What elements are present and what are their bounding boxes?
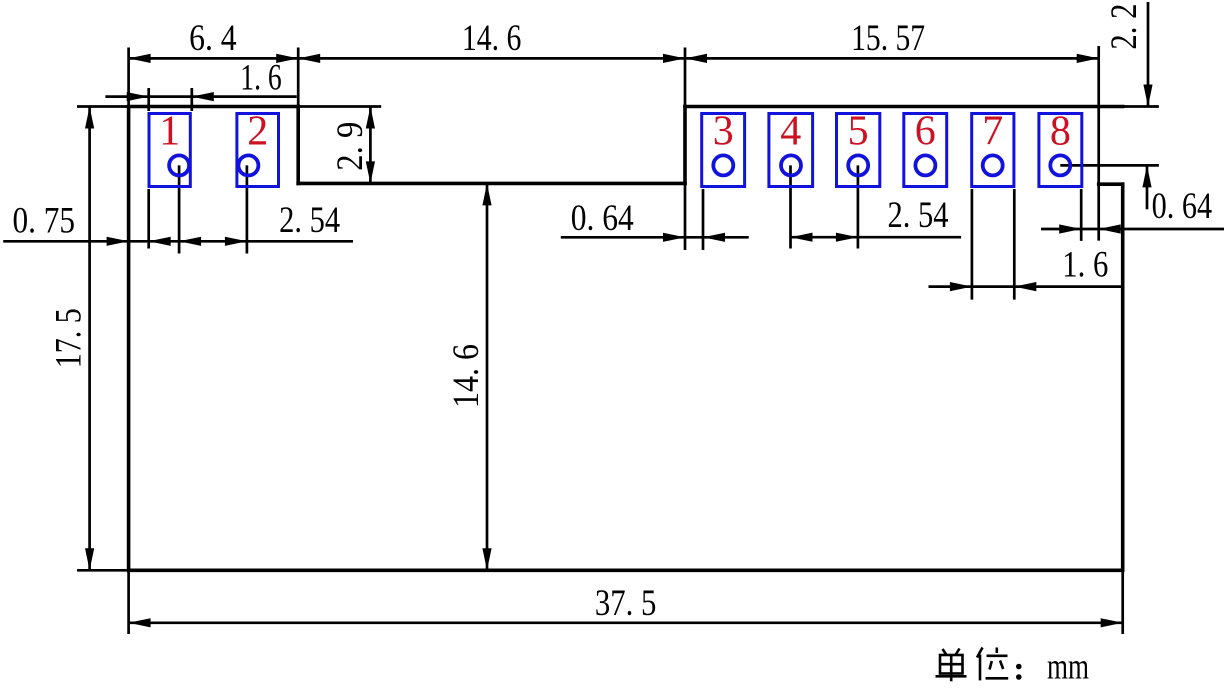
svg-text:6. 4: 6. 4 bbox=[189, 18, 237, 59]
svg-text:1: 1 bbox=[159, 109, 180, 155]
svg-text:6: 6 bbox=[915, 109, 936, 155]
svg-text:7: 7 bbox=[982, 109, 1003, 155]
svg-text:0. 75: 0. 75 bbox=[13, 200, 76, 241]
svg-text:1. 6: 1. 6 bbox=[1062, 245, 1108, 286]
svg-text:2. 54: 2. 54 bbox=[888, 195, 949, 236]
svg-text:15. 57: 15. 57 bbox=[851, 18, 925, 59]
svg-text:3: 3 bbox=[713, 109, 734, 155]
svg-text:0. 64: 0. 64 bbox=[571, 198, 634, 239]
svg-text:mm: mm bbox=[1047, 647, 1089, 688]
svg-text:5: 5 bbox=[848, 109, 869, 155]
svg-text:1. 6: 1. 6 bbox=[240, 58, 282, 99]
svg-text:4: 4 bbox=[780, 109, 801, 155]
svg-text:2: 2 bbox=[247, 109, 268, 155]
svg-text:17. 5: 17. 5 bbox=[49, 308, 90, 368]
svg-text:0. 64: 0. 64 bbox=[1152, 186, 1213, 227]
svg-text:2. 54: 2. 54 bbox=[279, 200, 340, 241]
svg-text:2. 2: 2. 2 bbox=[1104, 4, 1145, 50]
svg-text:2. 9: 2. 9 bbox=[330, 122, 371, 171]
svg-text:8: 8 bbox=[1050, 109, 1071, 155]
svg-text:37. 5: 37. 5 bbox=[595, 583, 657, 624]
svg-text:14. 6: 14. 6 bbox=[446, 344, 487, 408]
svg-text:14. 6: 14. 6 bbox=[462, 18, 522, 59]
